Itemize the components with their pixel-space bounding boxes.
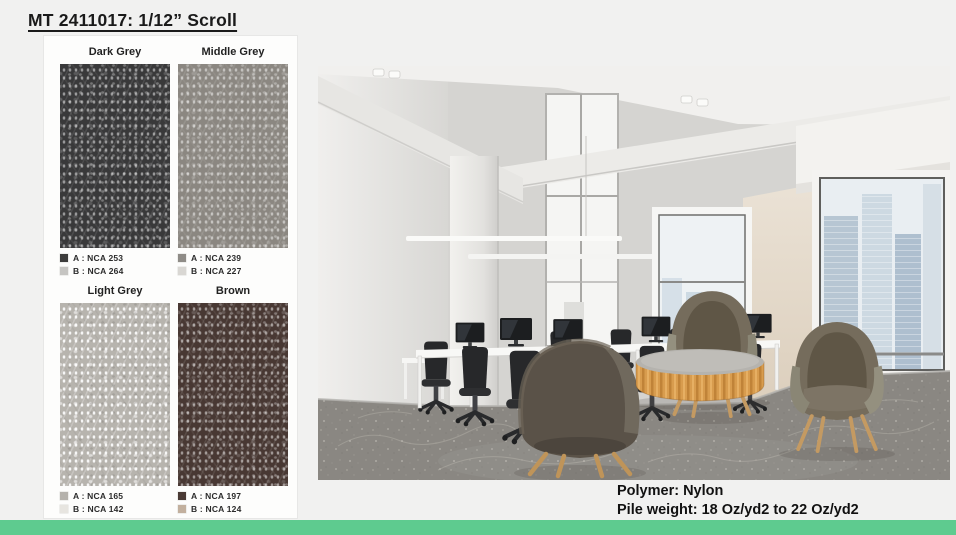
color-code: A : NCA 253 <box>73 253 123 263</box>
legend-row: B : NCA 227 <box>178 266 288 276</box>
swatch-name: Middle Grey <box>178 46 288 58</box>
color-code: B : NCA 227 <box>191 266 242 276</box>
carpet-swatch-dark-grey <box>60 64 170 248</box>
swatch-legend: A : NCA 239 B : NCA 227 <box>178 253 288 276</box>
color-code: B : NCA 264 <box>73 266 124 276</box>
legend-row: B : NCA 124 <box>178 504 288 514</box>
legend-row: B : NCA 264 <box>60 266 170 276</box>
legend-row: A : NCA 239 <box>178 253 288 263</box>
swatch-cell-dark-grey: Dark Grey A : NCA 253 B : NCA 264 <box>60 42 170 276</box>
legend-row: B : NCA 142 <box>60 504 170 514</box>
color-chip <box>178 505 186 513</box>
color-chip <box>178 254 186 262</box>
coffee-table <box>636 349 764 401</box>
legend-row: A : NCA 165 <box>60 491 170 501</box>
color-chip <box>60 505 68 513</box>
swatch-legend: A : NCA 165 B : NCA 142 <box>60 491 170 514</box>
footer-accent-bar <box>0 520 956 535</box>
color-code: B : NCA 142 <box>73 504 124 514</box>
color-chip <box>60 267 68 275</box>
swatch-cell-middle-grey: Middle Grey A : NCA 239 B : NCA 227 <box>178 42 288 276</box>
swatch-legend: A : NCA 253 B : NCA 264 <box>60 253 170 276</box>
swatch-grid: Dark Grey A : NCA 253 B : NCA 264 Middle… <box>60 42 283 514</box>
carpet-swatch-middle-grey <box>178 64 288 248</box>
color-chip <box>178 267 186 275</box>
legend-row: A : NCA 253 <box>60 253 170 263</box>
carpet-swatch-light-grey <box>60 303 170 486</box>
color-chip <box>60 254 68 262</box>
spec-polymer: Polymer: Nylon <box>617 482 859 501</box>
spec-pile-weight: Pile weight: 18 Oz/yd2 to 22 Oz/yd2 <box>617 501 859 520</box>
color-code: A : NCA 197 <box>191 491 241 501</box>
legend-row: A : NCA 197 <box>178 491 288 501</box>
swatch-name: Light Grey <box>60 285 170 297</box>
swatch-name: Dark Grey <box>60 46 170 58</box>
color-code: A : NCA 239 <box>191 253 241 263</box>
swatch-cell-brown: Brown A : NCA 197 B : NCA 124 <box>178 276 288 514</box>
room-render <box>318 66 950 480</box>
color-chip <box>60 492 68 500</box>
swatch-name: Brown <box>178 285 288 297</box>
carpet-swatch-brown <box>178 303 288 486</box>
color-code: A : NCA 165 <box>73 491 123 501</box>
color-chip <box>178 492 186 500</box>
swatch-cell-light-grey: Light Grey A : NCA 165 B : NCA 142 <box>60 276 170 514</box>
product-specs: Polymer: Nylon Pile weight: 18 Oz/yd2 to… <box>617 482 859 519</box>
page-title: MT 2411017: 1/12” Scroll <box>28 10 237 31</box>
color-code: B : NCA 124 <box>191 504 242 514</box>
swatch-legend: A : NCA 197 B : NCA 124 <box>178 491 288 514</box>
swatch-panel: Dark Grey A : NCA 253 B : NCA 264 Middle… <box>44 36 297 518</box>
